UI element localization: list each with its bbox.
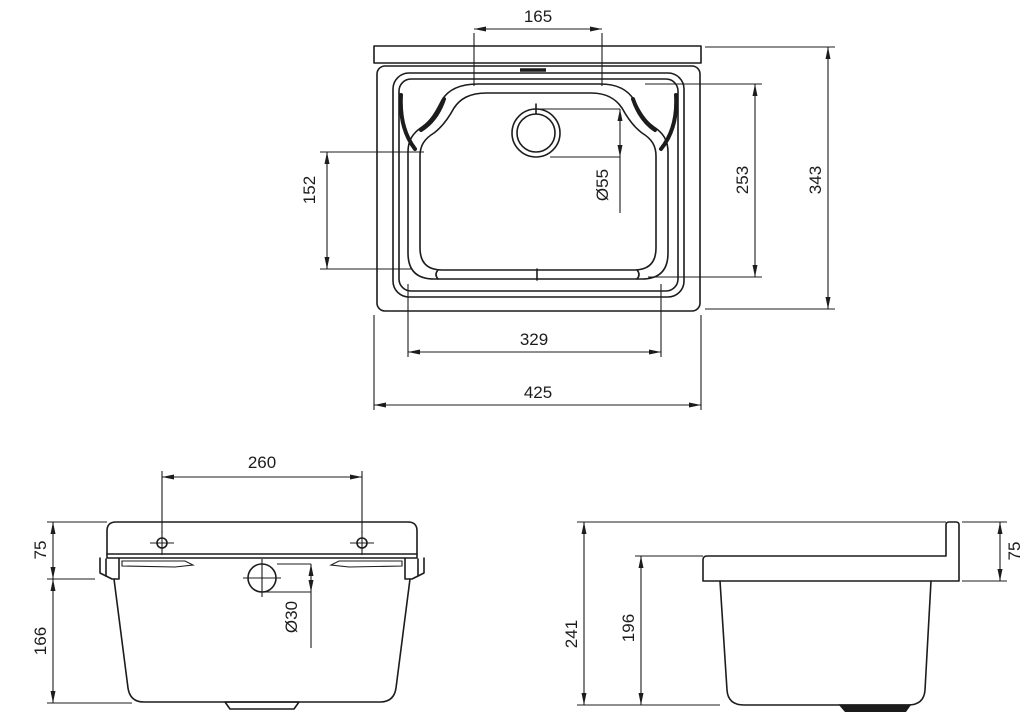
top-slot-end-left	[436, 270, 438, 279]
dim-label-75-front: 75	[31, 541, 50, 560]
dim-label-196: 196	[619, 614, 638, 642]
front-view: 260 75 166 Ø30	[31, 453, 424, 709]
top-shading-arc-left-outer	[401, 95, 415, 149]
dim-label-329: 329	[520, 330, 548, 349]
dim-mounting-hole-spacing: 260	[162, 453, 362, 533]
top-view: 165 152 Ø55 253 343	[300, 7, 835, 410]
drain-hole-inner	[517, 114, 555, 152]
mounting-hole-right	[350, 531, 374, 555]
front-rim	[107, 522, 417, 558]
top-basin-wall-outer	[408, 84, 668, 279]
top-frame-outer	[393, 73, 684, 297]
side-view: 241 196 75	[562, 522, 1024, 712]
front-underside-left	[122, 561, 193, 567]
top-shading-arc-left-inner	[421, 99, 444, 130]
sink-technical-drawing: 165 152 Ø55 253 343	[0, 0, 1024, 712]
dim-overflow-diameter: Ø30	[262, 564, 311, 648]
dim-label-166: 166	[31, 627, 50, 655]
dim-side-basin-height: 196	[619, 556, 703, 705]
side-body	[720, 581, 931, 705]
top-outer-rim	[377, 66, 700, 311]
dim-label-diam55: Ø55	[593, 169, 612, 201]
dim-label-165: 165	[524, 7, 552, 26]
dim-basin-width: 329	[408, 284, 661, 357]
mounting-hole-left	[150, 531, 174, 555]
dim-label-75-side: 75	[1005, 542, 1024, 561]
dim-label-241: 241	[562, 620, 581, 648]
top-shading-arc-right-outer	[661, 95, 676, 149]
dim-label-343: 343	[806, 166, 825, 194]
dim-front-rim-height: 75	[31, 522, 107, 579]
dim-side-overall-height: 241	[562, 522, 946, 705]
dim-drain-diameter: Ø55	[536, 109, 620, 213]
side-rim-profile	[703, 522, 959, 581]
dim-side-rim-height: 75	[962, 522, 1024, 581]
dim-label-260: 260	[248, 453, 276, 472]
dim-label-425: 425	[524, 383, 552, 402]
front-drain-tab	[225, 702, 299, 709]
dim-label-152: 152	[300, 176, 319, 204]
side-drain-tab	[840, 705, 910, 712]
top-slot-end-right	[637, 270, 639, 279]
top-back-ledge	[374, 46, 701, 63]
dim-basin-depth-right: 253	[645, 84, 762, 277]
dim-label-253: 253	[733, 166, 752, 194]
drain-hole-outer	[512, 109, 560, 157]
dim-basin-depth-left: 152	[300, 152, 424, 269]
front-skirt-left	[100, 558, 119, 579]
technical-drawing-page: 165 152 Ø55 253 343	[0, 0, 1024, 712]
top-basin-wall-inner	[420, 93, 656, 270]
dim-label-diam30: Ø30	[282, 601, 301, 633]
top-shading-arc-right-inner	[633, 99, 655, 130]
front-body	[114, 579, 410, 702]
front-underside-right	[331, 561, 402, 567]
dim-overall-depth: 343	[705, 47, 835, 309]
front-skirt-right	[405, 558, 424, 579]
